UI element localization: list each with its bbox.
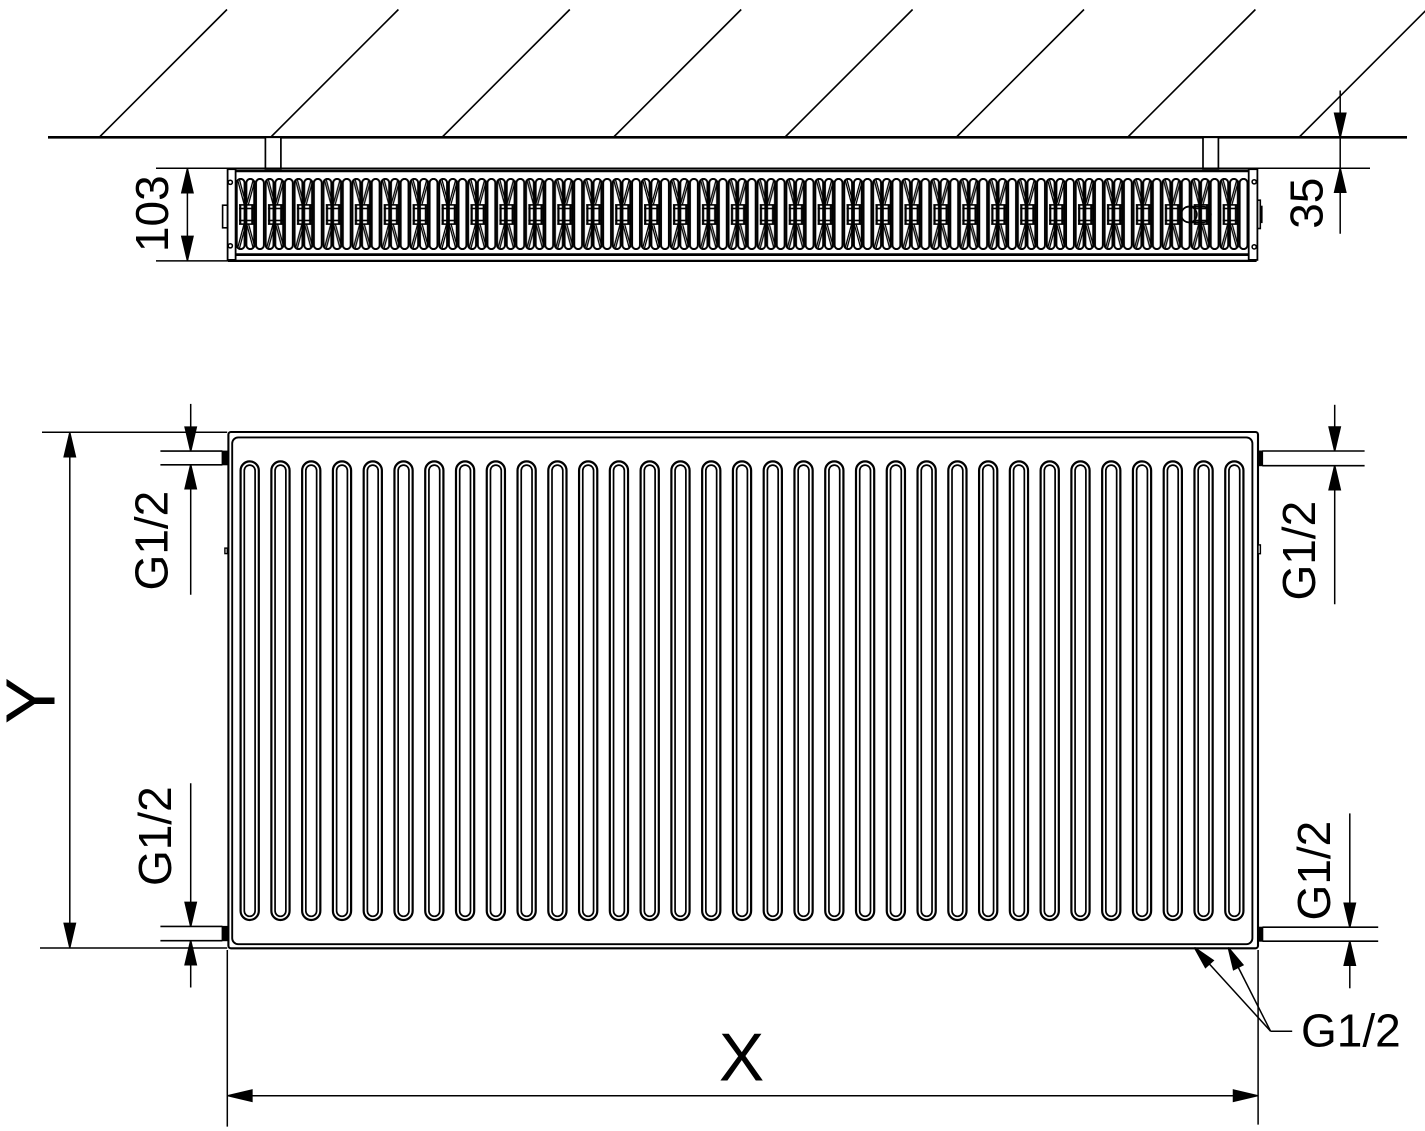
svg-text:G1/2: G1/2 (129, 786, 181, 886)
svg-text:G1/2: G1/2 (1288, 821, 1340, 921)
svg-text:103: 103 (126, 175, 178, 252)
svg-text:Y: Y (0, 677, 69, 724)
svg-text:G1/2: G1/2 (1301, 1004, 1401, 1056)
svg-text:G1/2: G1/2 (125, 491, 177, 591)
svg-text:G1/2: G1/2 (1273, 501, 1325, 601)
svg-text:35: 35 (1281, 178, 1333, 229)
svg-text:X: X (719, 1020, 764, 1096)
